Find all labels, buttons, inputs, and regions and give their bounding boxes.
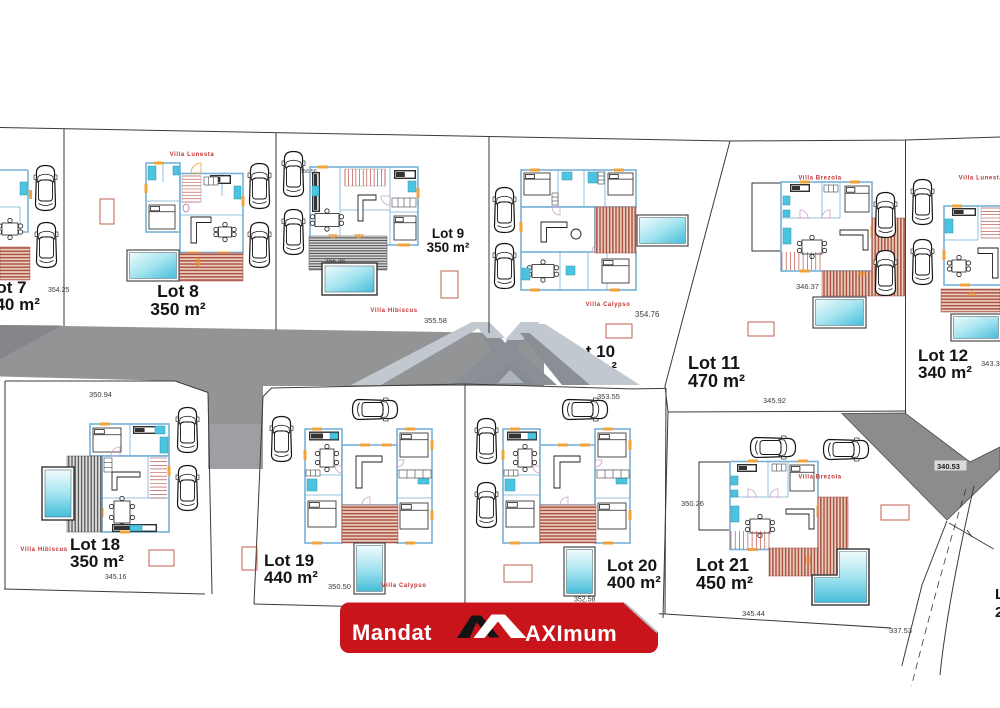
svg-text:440 m²: 440 m² <box>264 568 318 587</box>
svg-text:AXImum: AXImum <box>525 621 617 646</box>
svg-text:353.55: 353.55 <box>597 392 620 401</box>
svg-text:350 m²: 350 m² <box>70 552 124 571</box>
svg-text:Villa Hibiscus: Villa Hibiscus <box>370 308 417 314</box>
svg-text:340 m²: 340 m² <box>918 363 972 382</box>
svg-text:Villa Lunesta: Villa Lunesta <box>170 152 215 158</box>
svg-text:24: 24 <box>995 604 1000 621</box>
svg-text:354.76: 354.76 <box>635 310 660 319</box>
svg-text:345.92: 345.92 <box>763 396 786 405</box>
svg-text:346.37: 346.37 <box>796 282 819 291</box>
svg-text:350.94: 350.94 <box>89 390 112 399</box>
svg-text:Villa Brezola: Villa Brezola <box>798 475 841 481</box>
svg-text:400 m²: 400 m² <box>607 573 661 592</box>
svg-text:Villa Lunesta: Villa Lunesta <box>959 176 1000 182</box>
svg-text:Lot 11: Lot 11 <box>688 353 740 373</box>
svg-text:Villa Calypso: Villa Calypso <box>381 583 426 589</box>
svg-text:Villa Hibiscus: Villa Hibiscus <box>20 547 67 553</box>
svg-text:352.58: 352.58 <box>574 597 596 604</box>
svg-text:Lot 9: Lot 9 <box>432 226 464 241</box>
svg-text:Lo: Lo <box>995 586 1000 603</box>
svg-text:450 m²: 450 m² <box>696 573 753 593</box>
svg-text:Villa Brezola: Villa Brezola <box>798 176 841 182</box>
svg-text:350.50: 350.50 <box>328 582 351 591</box>
svg-text:356.56: 356.56 <box>300 169 317 175</box>
svg-text:Villa Calypso: Villa Calypso <box>585 302 630 308</box>
svg-text:Lot 21: Lot 21 <box>696 555 749 575</box>
svg-text:Mandat: Mandat <box>352 620 432 645</box>
svg-text:345.44: 345.44 <box>742 609 765 618</box>
svg-text:345.16: 345.16 <box>105 574 127 581</box>
svg-text:343.35: 343.35 <box>981 359 1000 368</box>
svg-text:355.58: 355.58 <box>424 316 447 325</box>
svg-text:350 m²: 350 m² <box>150 299 206 319</box>
svg-text:Lot 8: Lot 8 <box>157 281 199 301</box>
svg-text:350 m²: 350 m² <box>427 240 470 255</box>
svg-text:354.25: 354.25 <box>48 287 70 294</box>
svg-text:470 m²: 470 m² <box>688 371 745 391</box>
svg-text:337.53: 337.53 <box>889 626 912 635</box>
svg-text:340.53: 340.53 <box>937 462 960 471</box>
svg-text:350.26: 350.26 <box>681 499 704 508</box>
svg-text:440 m²: 440 m² <box>0 295 40 314</box>
